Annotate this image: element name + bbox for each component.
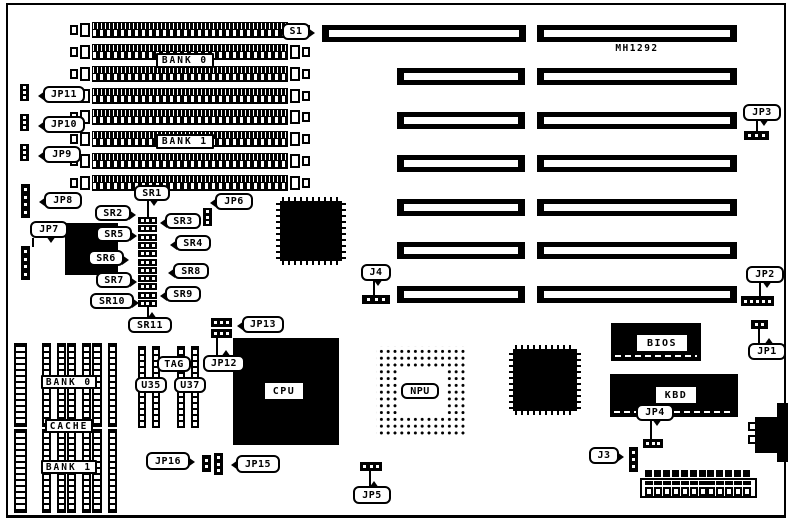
isa-slot-keyway [544, 247, 730, 254]
label-jp2: JP2 [746, 266, 784, 283]
label-sr3: SR3 [165, 213, 201, 229]
label-tail-sr4 [165, 240, 177, 250]
qfp-chipset-1-pins-bottom [282, 260, 340, 265]
simm-contact-row [93, 161, 287, 167]
label-sr5: SR5 [96, 226, 132, 242]
jumper-pin [220, 321, 223, 324]
isa-slot [397, 199, 525, 216]
power-pin-dash [663, 481, 671, 485]
qfp-chipset-1 [280, 201, 342, 261]
jumper-pin [23, 116, 26, 119]
label-u37: U37 [174, 377, 206, 393]
simm-end-cap [302, 178, 310, 188]
jumper-pin [205, 459, 208, 462]
simm-contact-row [93, 30, 287, 36]
jumper-pin [146, 294, 149, 297]
label-kbd: KBD [656, 387, 696, 403]
jp7-jumper [21, 246, 30, 280]
simm-latch [80, 132, 90, 146]
label-tail-jp11 [33, 91, 45, 101]
label-cache: CACHE [45, 419, 93, 433]
jumper-pin [141, 252, 144, 255]
isa-slot-keyway [404, 247, 518, 254]
simm-contact-row [93, 89, 287, 95]
jumper-pin [146, 219, 149, 222]
simm-slot [70, 153, 310, 169]
power-pin-socket [681, 487, 689, 496]
jumper-pin [206, 216, 209, 219]
label-jp6: JP6 [215, 193, 253, 210]
jumper-pin [217, 456, 220, 459]
jumper-pin [750, 300, 753, 303]
label-tail-jp13 [232, 321, 244, 331]
power-pin-dash [707, 481, 715, 485]
label-npu: NPU [401, 383, 439, 399]
simm-end-cap [302, 134, 310, 144]
simm-end-cap [302, 47, 310, 57]
jumper-pin [146, 227, 149, 230]
jumper-pin [152, 285, 155, 288]
simm-slot [70, 88, 310, 104]
jp13-jumper-b [211, 329, 232, 338]
j4-jumper [362, 295, 390, 304]
simm-latch [80, 23, 90, 37]
label-sr1: SR1 [134, 185, 170, 201]
power-pin-dash [743, 481, 751, 485]
isa-slot [537, 68, 737, 85]
power-pin [672, 470, 679, 477]
label-tail-sr6 [122, 255, 134, 265]
simm-latch [290, 176, 300, 190]
isa-slot-keyway [404, 73, 518, 80]
jp13-jumper-a [211, 318, 232, 327]
power-pin-socket [699, 487, 707, 496]
sr-jumper-block [138, 259, 157, 266]
power-pin [707, 470, 714, 477]
label-jp10: JP10 [43, 116, 85, 133]
simm-latch [80, 176, 90, 190]
isa-slot [397, 155, 525, 172]
label-j3: J3 [589, 447, 619, 464]
power-pin [725, 470, 732, 477]
jumper-pin [762, 300, 765, 303]
isa-slot-keyway [544, 117, 730, 124]
keyboard-connector-notch [748, 435, 757, 444]
simm-end-cap [70, 69, 78, 79]
jumper-pin [141, 269, 144, 272]
isa-slot [397, 112, 525, 129]
power-pin-socket [672, 487, 680, 496]
leader-line [759, 283, 761, 297]
simm-contacts [92, 88, 288, 104]
label-tail-jp10 [33, 121, 45, 131]
jumper-pin [23, 121, 26, 124]
dip-pin-column [108, 429, 118, 513]
power-pin [699, 470, 706, 477]
label-jp3: JP3 [743, 104, 781, 121]
jp2-jumper [741, 296, 774, 306]
jumper-pin [24, 203, 27, 206]
simm-slot [70, 109, 310, 125]
label-jp15: JP15 [236, 455, 280, 473]
label-bank0-top: BANK 0 [156, 53, 214, 68]
simm-contacts [92, 66, 288, 82]
simm-latch [290, 45, 300, 59]
leader-line [758, 328, 760, 344]
label-sr6: SR6 [88, 250, 124, 266]
jp11-jumper [20, 84, 29, 101]
jumper-pin [217, 463, 220, 466]
isa-slot [537, 242, 737, 259]
label-tail-sr9 [155, 291, 167, 301]
power-pin [654, 470, 661, 477]
label-tail-sr10 [132, 298, 144, 308]
label-cpu: CPU [265, 383, 303, 399]
jumper-pin [152, 302, 155, 305]
jumper-pin [24, 265, 27, 268]
simm-contacts [92, 22, 288, 38]
label-tail-jp6 [205, 198, 217, 208]
label-tail-sr11 [147, 307, 157, 319]
isa-slot [537, 25, 737, 42]
isa-slot-keyway [404, 160, 518, 167]
jumper-pin [768, 300, 771, 303]
jumper-pin [375, 298, 378, 301]
qfp-chipset-1-pins-right [341, 203, 346, 259]
label-tail-s1 [308, 28, 320, 38]
isa-slot [537, 155, 737, 172]
jumper-pin [23, 126, 26, 129]
jumper-pin [23, 91, 26, 94]
jumper-pin [141, 294, 144, 297]
jumper-pin [23, 96, 26, 99]
label-tail-sr7 [130, 277, 142, 287]
power-pin-dash [681, 481, 689, 485]
jumper-pin [363, 465, 366, 468]
power-pin-dash [734, 481, 742, 485]
label-mh1292: MH1292 [610, 42, 664, 54]
label-bank1-top: BANK 1 [156, 134, 214, 149]
power-pin-socket [707, 487, 715, 496]
isa-slot-keyway [544, 204, 730, 211]
simm-end-cap [70, 134, 78, 144]
isa-slot [537, 112, 737, 129]
jumper-pin [24, 250, 27, 253]
keyboard-connector-body [755, 417, 779, 453]
jp16-jumper [202, 455, 211, 472]
isa-slot [537, 286, 737, 303]
power-pin [663, 470, 670, 477]
isa-slot [397, 242, 525, 259]
dip-chip [14, 429, 27, 513]
dip-chip [14, 343, 27, 427]
power-pin-socket [645, 487, 653, 496]
simm-latch [80, 67, 90, 81]
simm-contact-row [93, 176, 287, 182]
power-pin [681, 470, 688, 477]
power-pin-socket [690, 487, 698, 496]
jumper-pin [146, 285, 149, 288]
label-tail-j3 [617, 452, 629, 462]
label-jp5: JP5 [353, 486, 391, 504]
power-pin [716, 470, 723, 477]
simm-contacts [92, 109, 288, 125]
jumper-pin [141, 227, 144, 230]
label-sr8: SR8 [173, 263, 209, 279]
label-tail-j4 [373, 279, 383, 291]
jumper-pin [217, 469, 220, 472]
isa-slot [322, 25, 526, 42]
jumper-pin [220, 332, 223, 335]
label-u35: U35 [135, 377, 167, 393]
label-sr2: SR2 [95, 205, 131, 221]
jumper-pin [755, 323, 758, 326]
isa-slot-keyway [329, 30, 519, 37]
power-pin-socket [743, 487, 751, 496]
jumper-pin [152, 277, 155, 280]
label-tail-jp15 [226, 460, 238, 470]
label-sr4: SR4 [175, 235, 211, 251]
jumper-pin [141, 244, 144, 247]
simm-end-cap [302, 112, 310, 122]
power-pin-socket [734, 487, 742, 496]
jumper-pin [146, 261, 149, 264]
jumper-pin [226, 321, 229, 324]
jp15-jumper [214, 453, 223, 475]
simm-end-cap [70, 47, 78, 57]
leader-line [756, 121, 758, 132]
dip-pin-column [108, 343, 118, 427]
jumper-pin [24, 258, 27, 261]
jumper-pin [23, 86, 26, 89]
label-tail-jp16 [188, 457, 200, 467]
simm-latch [290, 110, 300, 124]
jumper-pin [152, 244, 155, 247]
simm-end-cap [70, 25, 78, 35]
simm-latch [80, 154, 90, 168]
label-s1: S1 [282, 23, 310, 40]
label-tail-jp5 [369, 476, 379, 488]
jumper-pin [152, 236, 155, 239]
simm-contact-row [93, 154, 287, 160]
power-pin-dash [672, 481, 680, 485]
keyboard-connector-notch [748, 422, 757, 431]
jumper-pin [646, 442, 649, 445]
j3-jumper [629, 447, 638, 472]
jumper-pin [382, 298, 385, 301]
jp10-jumper [20, 114, 29, 131]
isa-slot [397, 286, 525, 303]
power-pin-dash [699, 481, 707, 485]
simm-slot [70, 66, 310, 82]
label-tail-jp12 [221, 345, 231, 357]
jumper-pin [205, 465, 208, 468]
jumper-pin [632, 465, 635, 468]
simm-contact-row [93, 23, 287, 29]
label-bank1-cache: BANK 1 [41, 460, 97, 474]
jumper-pin [756, 300, 759, 303]
label-sr7: SR7 [96, 272, 132, 288]
power-pin [734, 470, 741, 477]
label-jp8: JP8 [44, 192, 82, 209]
jumper-pin [23, 146, 26, 149]
simm-latch [290, 89, 300, 103]
qfp-chipset-2-pins-right [576, 351, 581, 409]
power-pin-socket [663, 487, 671, 496]
power-pin-dash [690, 481, 698, 485]
label-tail-jp8 [34, 197, 46, 207]
leader-line [32, 238, 34, 247]
label-jp1: JP1 [748, 343, 786, 360]
sr-jumper-block [138, 250, 157, 257]
simm-contacts [92, 153, 288, 169]
jumper-pin [152, 252, 155, 255]
simm-contact-row [93, 45, 287, 51]
jumper-pin [152, 269, 155, 272]
label-jp12: JP12 [203, 355, 245, 372]
simm-latch [290, 154, 300, 168]
label-jp13: JP13 [242, 316, 284, 333]
jumper-pin [632, 458, 635, 461]
label-bios: BIOS [637, 335, 687, 351]
qfp-chipset-2-pins-top [515, 345, 575, 350]
simm-end-cap [302, 91, 310, 101]
qfp-chipset-2-pins-left [509, 351, 514, 409]
simm-latch [290, 132, 300, 146]
jp6-jumper [203, 208, 212, 226]
jumper-pin [23, 156, 26, 159]
jumper-pin [376, 465, 379, 468]
label-jp4: JP4 [636, 404, 674, 421]
simm-contact-row [93, 117, 287, 123]
jumper-pin [24, 211, 27, 214]
jumper-pin [226, 332, 229, 335]
label-tail-jp7 [46, 236, 56, 248]
label-tail-jp1 [764, 333, 774, 345]
simm-contact-row [93, 110, 287, 116]
jp3-jumper [744, 131, 769, 140]
label-jp9: JP9 [43, 146, 81, 163]
qfp-chipset-2 [513, 349, 577, 411]
jumper-pin [146, 244, 149, 247]
isa-slot-keyway [544, 291, 730, 298]
jumper-pin [762, 134, 765, 137]
jp4-jumper [643, 439, 663, 448]
jumper-pin [206, 221, 209, 224]
label-tail-sr8 [163, 268, 175, 278]
qfp-chipset-1-pins-top [282, 197, 340, 202]
label-tail-sr1 [149, 199, 159, 211]
jumper-pin [214, 332, 217, 335]
simm-end-cap [70, 178, 78, 188]
label-bank0-cache: BANK 0 [41, 375, 97, 389]
jp8-jumper [21, 184, 30, 218]
qfp-chipset-1-pins-left [276, 203, 281, 259]
leader-line [216, 338, 218, 356]
chip-pin-row [615, 355, 697, 357]
dip-pin-column [14, 343, 27, 427]
jumper-pin [657, 442, 660, 445]
label-sr10: SR10 [90, 293, 134, 309]
label-tag: TAG [157, 356, 191, 372]
label-tail-jp2 [762, 281, 772, 293]
jumper-pin [146, 302, 149, 305]
label-tail-sr2 [129, 210, 141, 220]
simm-contacts [92, 175, 288, 191]
label-tail-sr5 [130, 231, 142, 241]
jumper-pin [632, 451, 635, 454]
jumper-pin [755, 134, 758, 137]
jumper-pin [370, 465, 373, 468]
isa-slot-keyway [404, 117, 518, 124]
jumper-pin [146, 269, 149, 272]
jumper-pin [152, 261, 155, 264]
power-pin-dash [654, 481, 662, 485]
simm-slot [70, 175, 310, 191]
motherboard-diagram: S1BANK 0BANK 1JP11JP10JP9JP8JP7SR1SR2SR3… [0, 0, 793, 527]
label-jp16: JP16 [146, 452, 190, 470]
jumper-pin [761, 323, 764, 326]
jumper-pin [214, 321, 217, 324]
power-pin-dash [716, 481, 724, 485]
power-pin [645, 470, 652, 477]
isa-slot [537, 199, 737, 216]
isa-slot-keyway [544, 160, 730, 167]
isa-slot-keyway [404, 291, 518, 298]
label-tail-sr3 [155, 218, 167, 228]
simm-contact-row [93, 74, 287, 80]
isa-slot-keyway [544, 30, 730, 37]
label-tail-jp3 [759, 119, 769, 131]
jumper-pin [146, 236, 149, 239]
jumper-pin [146, 252, 149, 255]
dip-pin-column [14, 429, 27, 513]
jp5-jumper [360, 462, 382, 471]
jumper-pin [24, 196, 27, 199]
sr-jumper-block [138, 267, 157, 274]
label-jp7: JP7 [30, 221, 68, 238]
jp9-jumper [20, 144, 29, 161]
simm-end-cap [302, 156, 310, 166]
power-pin [690, 470, 697, 477]
label-tail-jp4 [652, 419, 662, 431]
power-pin-socket [716, 487, 724, 496]
jumper-pin [141, 261, 144, 264]
power-pin-socket [654, 487, 662, 496]
label-jp11: JP11 [43, 86, 85, 103]
chip-pin-row [614, 411, 734, 413]
jumper-pin [24, 273, 27, 276]
simm-contact-row [93, 183, 287, 189]
jumper-pin [744, 300, 747, 303]
simm-latch [290, 67, 300, 81]
sr-jumper-block [138, 242, 157, 249]
jumper-pin [367, 298, 370, 301]
power-pin [743, 470, 750, 477]
jumper-pin [748, 134, 751, 137]
jumper-pin [23, 151, 26, 154]
label-tail-jp9 [33, 151, 45, 161]
simm-end-cap [302, 69, 310, 79]
simm-slot [70, 22, 310, 38]
label-j4: J4 [361, 264, 391, 281]
qfp-chipset-2-pins-bottom [515, 410, 575, 415]
power-pin-dash [645, 481, 653, 485]
jumper-pin [146, 277, 149, 280]
isa-slot-keyway [404, 204, 518, 211]
power-pin-socket [725, 487, 733, 496]
isa-slot [397, 68, 525, 85]
